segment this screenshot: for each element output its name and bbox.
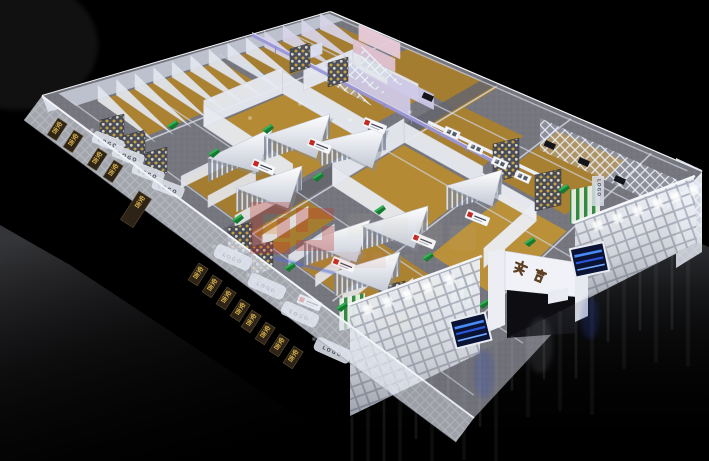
spotlight-dot (349, 119, 352, 122)
spotlight-dot (409, 111, 412, 114)
screen-reflection (474, 350, 494, 398)
exhibition-render-canvas: 安吉 LOGO LOGO LOGO LOGO LOGO LOGO (0, 0, 709, 461)
screen-reflection (581, 297, 599, 339)
watermark-orange-block (265, 222, 277, 234)
spotlight-dot (91, 129, 94, 132)
spotlight-dot (267, 157, 270, 160)
spotlight-dot (471, 144, 474, 147)
logo-booth-header-vertical: LOGO (592, 176, 604, 206)
honeycomb-panel (535, 169, 561, 211)
spotlight-dot (313, 338, 316, 341)
spotlight-dot (447, 129, 450, 132)
spotlight-dot (249, 117, 252, 120)
spotlight-dot (299, 103, 302, 106)
spotlight-dot (518, 173, 521, 176)
entrance-reflection (527, 317, 553, 373)
entrance-pillar-left (488, 249, 505, 332)
spotlight-dot (495, 159, 498, 162)
